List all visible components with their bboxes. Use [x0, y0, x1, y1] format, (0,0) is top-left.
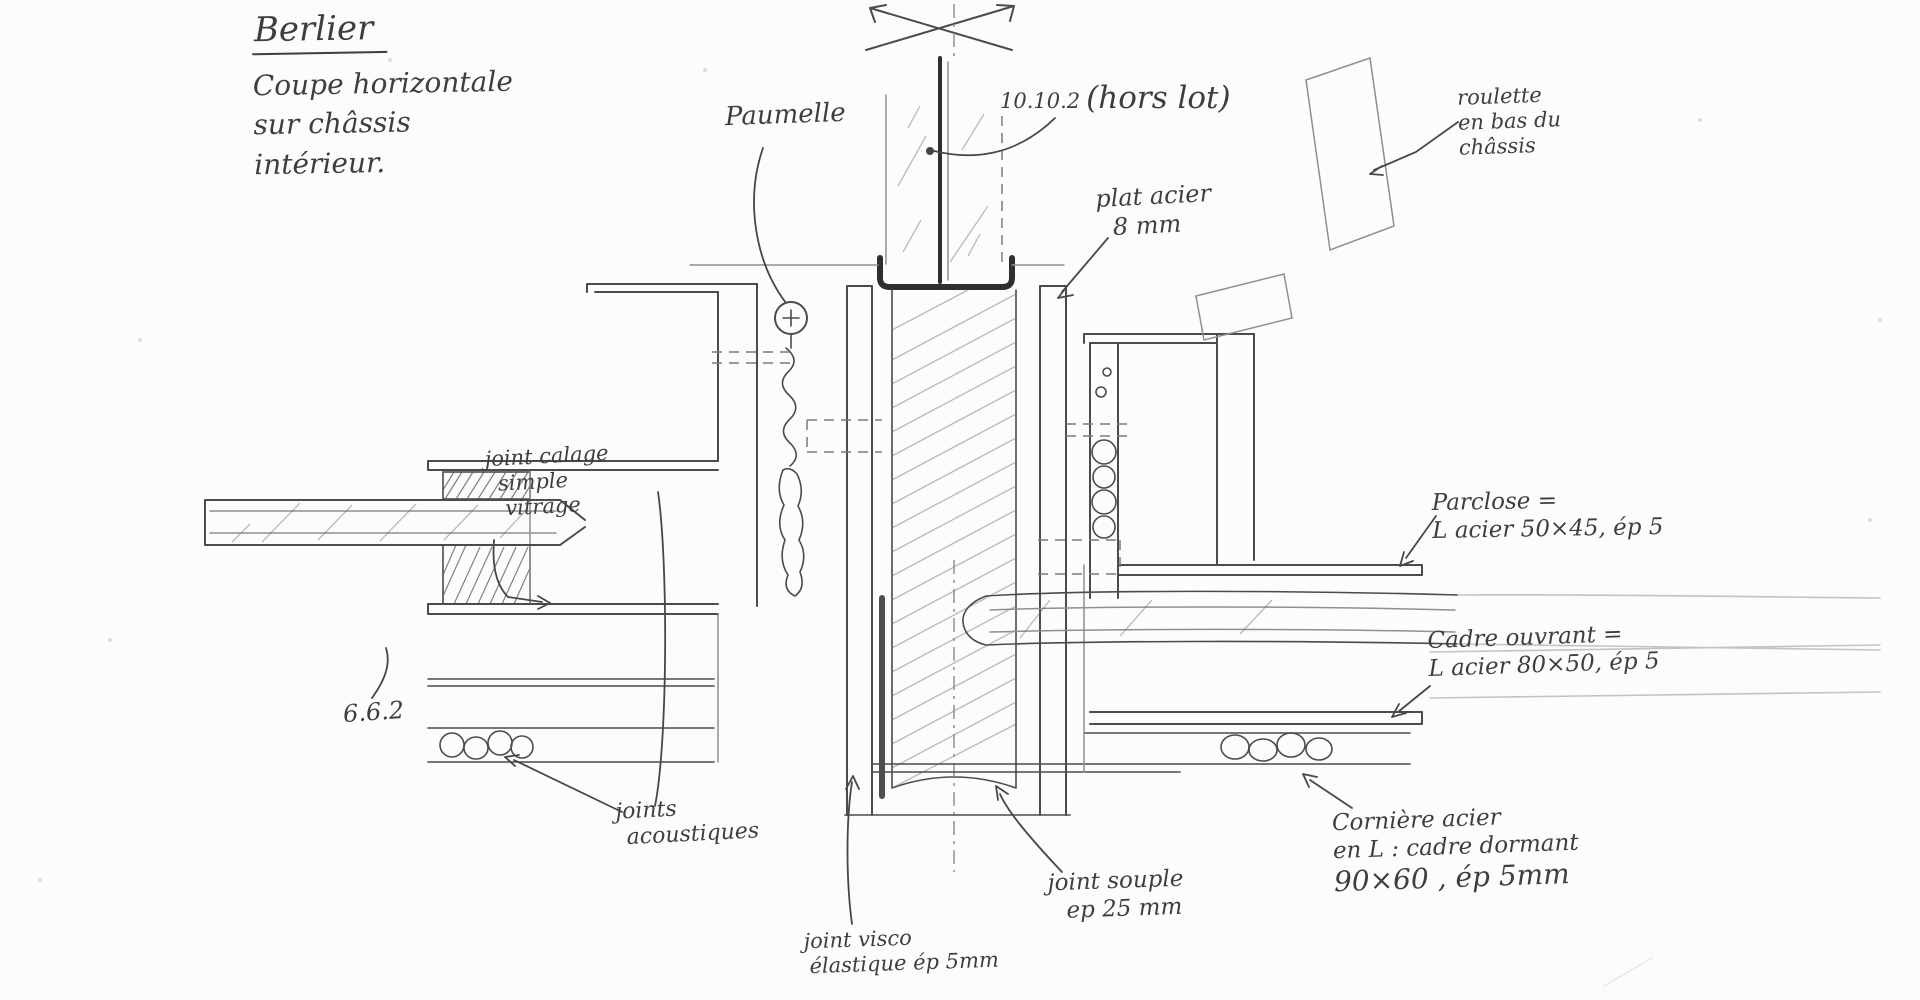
top-glass-hatch	[898, 106, 988, 262]
pane-ref-label: 6.6.2	[342, 696, 405, 729]
title-line-2: sur châssis	[253, 104, 514, 142]
plat-acier-line-1: plat acier	[1095, 179, 1212, 214]
left-dashed-keep	[807, 420, 882, 452]
parclose-line-2: L acier 50×45, ép 5	[1432, 514, 1664, 546]
joint-souple-arrow	[996, 786, 1062, 872]
glazing-ref-number: 10.10.2	[1000, 89, 1080, 114]
steel-plate-left	[847, 286, 872, 815]
title-line-1: Coupe horizontale	[253, 65, 514, 103]
paumelle-hinge	[775, 302, 807, 596]
left-dashed-ticks	[712, 352, 796, 363]
roulette-chute	[1306, 58, 1394, 250]
corniere-arrow	[1303, 774, 1352, 808]
roulette-lower-shape	[1196, 274, 1292, 340]
glazing-ref-suffix: (hors lot)	[1086, 80, 1230, 117]
packing-block-lower	[443, 545, 530, 604]
corniere-label: Cornière acier en L : cadre dormant 90×6…	[1332, 802, 1581, 899]
right-pane-outline	[963, 591, 1458, 645]
right-gasket-circles	[1092, 368, 1116, 538]
left-pane-reflections	[232, 503, 528, 542]
joints-acoustiques-arrow	[505, 755, 622, 812]
parclose-arrow	[1400, 516, 1436, 566]
joints-acoustiques-label: joints acoustiques	[615, 792, 760, 852]
joints-acoustiques-curve	[655, 492, 665, 806]
plat-acier-label: plat acier 8 mm	[1095, 179, 1214, 243]
left-dormant-lines	[428, 679, 714, 762]
glazing-ref-label: 10.10.2 (hors lot)	[1000, 80, 1231, 117]
right-pane-inner-lines	[990, 607, 1455, 632]
left-frame-top-flange	[587, 284, 757, 292]
top-glass-and-axis	[866, 4, 1014, 282]
acoustic-bead-row-right	[1221, 733, 1332, 761]
center-mullion	[690, 258, 1070, 872]
hinge-cross	[783, 310, 799, 326]
gasket-wavy-strip	[782, 348, 796, 466]
glass-channel-u	[880, 258, 1012, 287]
plat-acier-line-2: 8 mm	[1096, 208, 1213, 243]
cadre-ouvrant-label: Cadre ouvrant = L acier 80×50, ép 5	[1427, 620, 1660, 683]
title-line-3: intérieur.	[254, 144, 515, 182]
right-pane-reflections	[1020, 600, 1272, 638]
joint-visco-label: joint visco élastique ép 5mm	[803, 923, 999, 980]
right-dormant-lines	[872, 733, 1410, 772]
paumelle-leader-line	[754, 148, 786, 303]
roulette-label: roulette en bas du châssis	[1457, 82, 1563, 161]
joint-souple-label: joint souple ep 25 mm	[1047, 866, 1185, 926]
pane-ref-leader-line	[372, 648, 388, 698]
parclose-label: Parclose = L acier 50×45, ép 5	[1432, 486, 1664, 545]
parclose-line-1: Parclose =	[1432, 486, 1664, 518]
left-frame-vertical	[718, 284, 757, 606]
right-outer-vertical	[1217, 334, 1254, 565]
steel-plate-right	[1040, 286, 1066, 815]
pane-ref-text: 6.6.2	[342, 696, 405, 729]
plat-acier-arrow	[1058, 238, 1108, 298]
survey-cross	[866, 5, 1014, 50]
title-block: Berlier Coupe horizontale sur châssis in…	[252, 6, 515, 182]
right-frame-top-flange	[1084, 334, 1254, 343]
paumelle-text: Paumelle	[724, 98, 846, 133]
paumelle-label: Paumelle	[724, 98, 846, 133]
joint-souple-line-1: joint souple	[1047, 866, 1184, 898]
gasket-blob-strip	[779, 469, 804, 596]
right-dashed-keep	[1038, 540, 1120, 574]
cadre-ouvrant-flange	[1090, 712, 1422, 724]
left-frame	[428, 284, 882, 762]
project-name: Berlier	[252, 8, 388, 55]
joint-souple-line-2: ep 25 mm	[1048, 893, 1185, 925]
glazing-ref-leader-dot	[926, 147, 934, 155]
roulette-line-2: en bas du	[1458, 107, 1562, 136]
roulette-line-1: roulette	[1457, 82, 1561, 111]
packing-block-lower-hatch	[443, 545, 530, 604]
joint-calage-label: joint calage simple vitrage	[484, 441, 612, 523]
leader-lines	[372, 118, 1458, 924]
right-dashed-ticks	[1066, 424, 1130, 436]
parclose-flange	[1118, 565, 1422, 575]
glazing-ref-leader-line	[934, 118, 1055, 155]
left-glazing-bottom-flange	[428, 604, 718, 614]
roulette-line-3: châssis	[1458, 133, 1562, 162]
right-glass-pane	[963, 591, 1880, 698]
